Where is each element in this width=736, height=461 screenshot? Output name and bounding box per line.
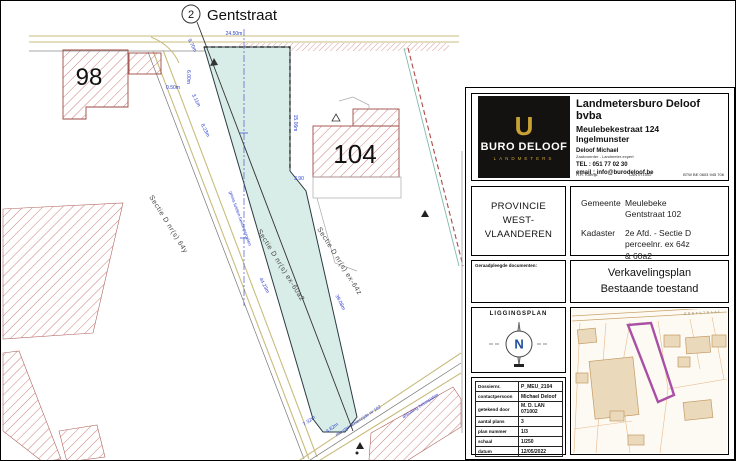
firm-tel: TEL : 051 77 02 30	[576, 162, 726, 170]
svg-text:24.50m: 24.50m	[226, 31, 243, 37]
parcel-98-label: 98	[76, 64, 103, 91]
dashed-boundary	[408, 48, 463, 266]
firm-reg-btw: BTW BE 0603 945 706	[683, 172, 724, 177]
kadaster-line2: perceelnr. ex 64z	[625, 239, 728, 250]
firm-box: U BURO DELOOF LANDMETERS Landmetersburo …	[471, 93, 729, 181]
firm-reg-lan: LAN 071002	[629, 172, 651, 177]
province-box: PROVINCIE WEST-VLAANDEREN	[471, 186, 566, 256]
north-letter: N	[514, 337, 523, 352]
liggingsplan-box: LIGGINGSPLAN N	[471, 307, 566, 373]
dossier-row: aantal plans3	[476, 417, 563, 427]
firm-contact-role: Zaakvoerder - Landmeter-expert	[576, 154, 726, 159]
svg-text:0.50m: 0.50m	[166, 85, 180, 91]
southwest-parcel-hatch	[3, 203, 123, 339]
firm-registrations: H.R. Kortrijk LAN 071002 BTW BE 0603 945…	[576, 172, 724, 177]
svg-text:7.32m: 7.32m	[302, 415, 317, 428]
building-104-annex	[353, 109, 399, 126]
plan-title-box: Verkavelingsplan Bestaande toestand	[570, 260, 729, 303]
province-line1: PROVINCIE	[491, 200, 546, 214]
dossier-row: getekend doorM. D. LAN 071002	[476, 402, 563, 417]
plan-sheet: 2 Gentstraat 98 104 Sectie D nr(s) 64y S…	[0, 0, 736, 461]
dashed-boundary-teal	[404, 48, 459, 266]
firm-address2: Ingelmunster	[576, 134, 726, 144]
dossier-row: datum12/05/2022	[476, 447, 563, 457]
north-compass-icon: N	[484, 319, 554, 369]
plan-title-line1: Verkavelingsplan	[608, 266, 691, 281]
location-map: GENTSTRAAT	[572, 309, 727, 453]
building-98-annex	[129, 53, 161, 74]
gemeente-value: Meulebeke	[625, 198, 728, 209]
south-small-hatch	[59, 425, 105, 461]
logo-name: BURO DELOOF	[481, 141, 568, 153]
dossier-row: schaal1/250	[476, 437, 563, 447]
firm-info: Landmetersburo Deloof bvba Meulebekestra…	[576, 98, 726, 178]
dossier-table: Dossiernr.P_MEU_2104 contactpersoonMicha…	[475, 381, 563, 457]
logo-monogram-icon: U	[515, 113, 534, 139]
dossier-row: Dossiernr.P_MEU_2104	[476, 382, 563, 392]
svg-text:44.23m: 44.23m	[257, 277, 270, 295]
buro-deloof-logo: U BURO DELOOF LANDMETERS	[478, 96, 570, 178]
firm-address1: Meulebekestraat 124	[576, 124, 726, 134]
firm-name: Landmetersburo Deloof bvba	[576, 98, 726, 122]
documents-box: Geraadpleegde documenten:	[471, 260, 566, 303]
svg-text:15.06m: 15.06m	[292, 115, 298, 132]
kadaster-label: Kadaster	[581, 228, 625, 262]
dossier-box: Dossiernr.P_MEU_2104 contactpersoonMicha…	[471, 377, 566, 455]
kadaster-line1: 2e Afd. - Sectie D	[625, 228, 728, 239]
subject-parcel	[204, 47, 357, 432]
parcel-104-label: 104	[333, 139, 376, 169]
lot-number: 2	[188, 9, 194, 21]
southwest-strip-hatch	[3, 351, 61, 461]
svg-text:8.23m: 8.23m	[199, 123, 211, 138]
firm-reg-hr: H.R. Kortrijk	[576, 172, 598, 177]
documents-header: Geraadpleegde documenten:	[472, 261, 565, 270]
plan-title-line2: Bestaande toestand	[601, 282, 699, 297]
logo-subtitle: LANDMETERS	[494, 156, 555, 161]
svg-text:3,90: 3,90	[294, 176, 304, 182]
svg-text:Sectie D nr(s) 64y: Sectie D nr(s) 64y	[147, 194, 188, 254]
southeast-parcel-hatch	[369, 387, 461, 461]
street-name-label: Gentstraat	[207, 7, 278, 24]
svg-text:3.11m: 3.11m	[190, 93, 201, 108]
liggingsplan-label: LIGGINGSPLAN	[472, 308, 565, 317]
location-map-box: GENTSTRAAT	[570, 307, 729, 455]
location-box: Gemeente Meulebeke Gentstraat 102 Kadast…	[570, 186, 729, 256]
province-line2: WEST-VLAANDEREN	[472, 214, 565, 243]
svg-text:6.00m: 6.00m	[185, 70, 191, 84]
svg-text:39.08m: 39.08m	[333, 294, 346, 312]
gemeente-street: Gentstraat 102	[625, 209, 728, 220]
gemeente-label: Gemeente	[581, 198, 625, 221]
dossier-row: plan nummer1/3	[476, 427, 563, 437]
dossier-row: contactpersoonMichael Deloof	[476, 392, 563, 402]
